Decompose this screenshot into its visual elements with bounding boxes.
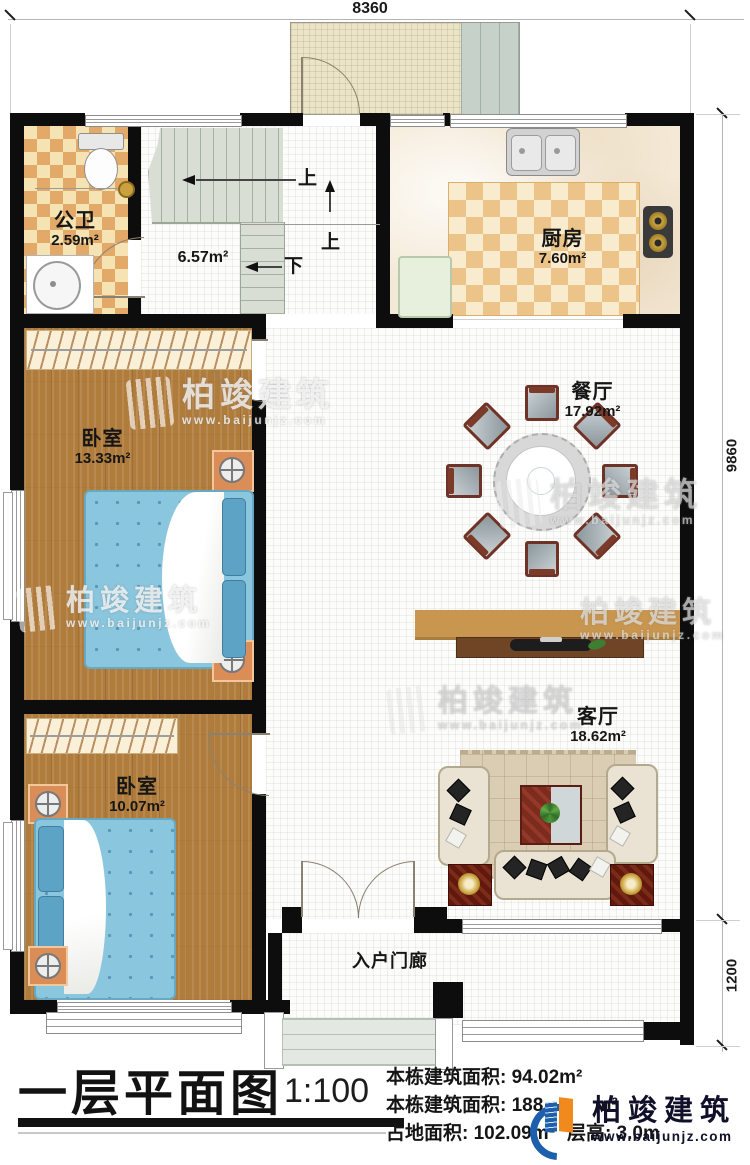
room-label-stairhall: 6.57m² (158, 248, 248, 268)
extension-line (10, 24, 11, 113)
dimension-right-lower-label: 1200 (724, 946, 741, 1006)
bedroom2-door-leaf (208, 733, 270, 735)
bed-blanket (162, 492, 224, 663)
dimension-line-top (8, 19, 744, 20)
wall (252, 314, 266, 340)
room-area: 18.62m² (548, 728, 648, 747)
burner (649, 212, 667, 230)
sink-basin (545, 135, 576, 171)
fridge (398, 256, 452, 318)
entry-door-left-leaf (301, 861, 303, 917)
balcony-door-leaf (301, 57, 303, 113)
room-label-dining: 餐厅 17.92m² (545, 381, 640, 422)
room-area: 13.33m² (40, 450, 165, 469)
porch-post (433, 982, 463, 1018)
wall (680, 113, 694, 1045)
bed-pillow (222, 580, 246, 658)
window-bay-sill (46, 1012, 242, 1034)
extension-line (690, 24, 691, 113)
window-bedroom1 (11, 490, 25, 622)
plant (540, 803, 560, 823)
stair-down-label: 下 (284, 251, 303, 278)
room-name: 卧室 (82, 776, 192, 798)
window-top-hall (390, 115, 445, 127)
nightstand-lamp (219, 457, 245, 483)
window-sill (3, 492, 13, 620)
stair-up-label: 上 (298, 163, 317, 190)
stair-direction-line (196, 179, 296, 181)
wall (10, 620, 24, 820)
toilet-bowl (84, 148, 118, 190)
north-line (329, 191, 331, 212)
room-area: 2.59m² (25, 232, 125, 251)
company-logo: 柏竣建筑 www.baijunjz.com (528, 1094, 736, 1154)
dining-chair (525, 541, 559, 577)
title-underline-thin (18, 1132, 386, 1134)
table-lamp (620, 873, 642, 895)
porch-floor (282, 933, 680, 1025)
room-label-bedroom2: 卧室 10.07m² (82, 776, 192, 817)
bathroom-sink (33, 261, 81, 310)
stair-up-label2: 上 (321, 227, 340, 254)
plan-scale: 1:100 (284, 1072, 369, 1111)
room-name: 入户门廊 (340, 952, 440, 972)
room-label-bathroom: 公卫 2.59m² (25, 210, 125, 251)
bedroom2-closet (26, 718, 178, 754)
sink-drain (519, 148, 525, 154)
window-living-front (462, 919, 662, 934)
room-label-porch: 入户门廊 (340, 952, 440, 972)
sink-basin (511, 135, 542, 171)
window-bedroom2-left (11, 820, 25, 952)
dimension-top-label: 8360 (290, 0, 450, 18)
lazy-susan (527, 467, 555, 495)
dining-chair (446, 464, 482, 498)
table-lamp (458, 873, 480, 895)
entry-door-right-leaf (413, 861, 415, 917)
sink-drain (554, 148, 560, 154)
room-name: 公卫 (25, 210, 125, 232)
window-top-bathroom (85, 115, 242, 127)
company-logo-text: 柏竣建筑 www.baijunjz.com (592, 1094, 736, 1144)
burner (649, 234, 667, 252)
room-area: 6.57m² (158, 248, 248, 268)
info-line-1: 本栋建筑面积: 94.02m² (386, 1064, 660, 1092)
logo-building-blue (545, 1101, 557, 1132)
nightstand-lamp (35, 953, 61, 979)
room-name: 餐厅 (545, 381, 640, 403)
room-name: 卧室 (40, 428, 165, 450)
tv-stand (540, 637, 562, 642)
wall (660, 919, 694, 932)
bed-pillow (38, 826, 64, 892)
room-area: 7.60m² (505, 250, 620, 269)
wall (376, 126, 390, 328)
wall (623, 314, 694, 328)
wall (282, 907, 302, 933)
extension-line (696, 920, 740, 921)
wall (10, 113, 24, 490)
info-line-2-label: 本栋建筑面积: 188. (386, 1095, 549, 1116)
bedroom1-closet (26, 330, 252, 370)
sink-drain (50, 281, 56, 287)
wall (10, 700, 266, 714)
extension-line (696, 1046, 740, 1047)
kitchen-sink (506, 128, 580, 176)
wall (360, 113, 390, 126)
porch-corner (642, 1022, 694, 1040)
partition-shelf (415, 610, 680, 640)
kitchen-opening-line (453, 319, 623, 320)
dimension-right-upper-label: 9860 (724, 426, 741, 486)
wall (240, 113, 303, 126)
shower-arm (35, 188, 123, 189)
wall (10, 314, 266, 328)
stair-landing-line (240, 224, 380, 225)
room-area: 17.92m² (545, 403, 640, 422)
entry-steps (282, 1018, 437, 1066)
balcony-steps (461, 23, 519, 114)
window-kitchen (450, 114, 627, 128)
shower-head (118, 181, 135, 198)
nightstand-lamp (35, 791, 61, 817)
title-underline (18, 1118, 404, 1127)
dining-chair (602, 464, 638, 498)
floor-plan-page: 8360 9860 1200 (0, 0, 750, 1165)
company-url: www.baijunjz.com (592, 1129, 736, 1144)
room-name: 客厅 (548, 706, 648, 728)
stove (643, 206, 673, 258)
room-label-kitchen: 厨房 7.60m² (505, 228, 620, 269)
wall (252, 400, 266, 734)
dimension-line-right (722, 115, 723, 1052)
logo-building-orange (559, 1097, 573, 1133)
wall (252, 794, 266, 1000)
bed-pillow (222, 498, 246, 576)
wall (414, 907, 447, 933)
stair-flight-upper (148, 128, 283, 224)
company-name: 柏竣建筑 (592, 1094, 736, 1129)
company-logo-icon (528, 1094, 584, 1154)
room-name: 厨房 (505, 228, 620, 250)
stair-direction-line2 (258, 266, 282, 268)
wall (128, 298, 141, 314)
wall (447, 919, 462, 933)
room-label-living: 客厅 18.62m² (548, 706, 648, 747)
plan-title: 一层平面图 (18, 1054, 283, 1125)
logo-swoosh (518, 1092, 597, 1165)
up-arrow (325, 180, 335, 192)
room-label-bedroom1: 卧室 13.33m² (40, 428, 165, 469)
step-curb (435, 1018, 453, 1070)
window-porch-front (462, 1020, 644, 1042)
stair-arrow-left (182, 175, 195, 185)
room-area: 10.07m² (82, 798, 192, 817)
window-sill (3, 822, 13, 950)
extension-line (696, 114, 740, 115)
